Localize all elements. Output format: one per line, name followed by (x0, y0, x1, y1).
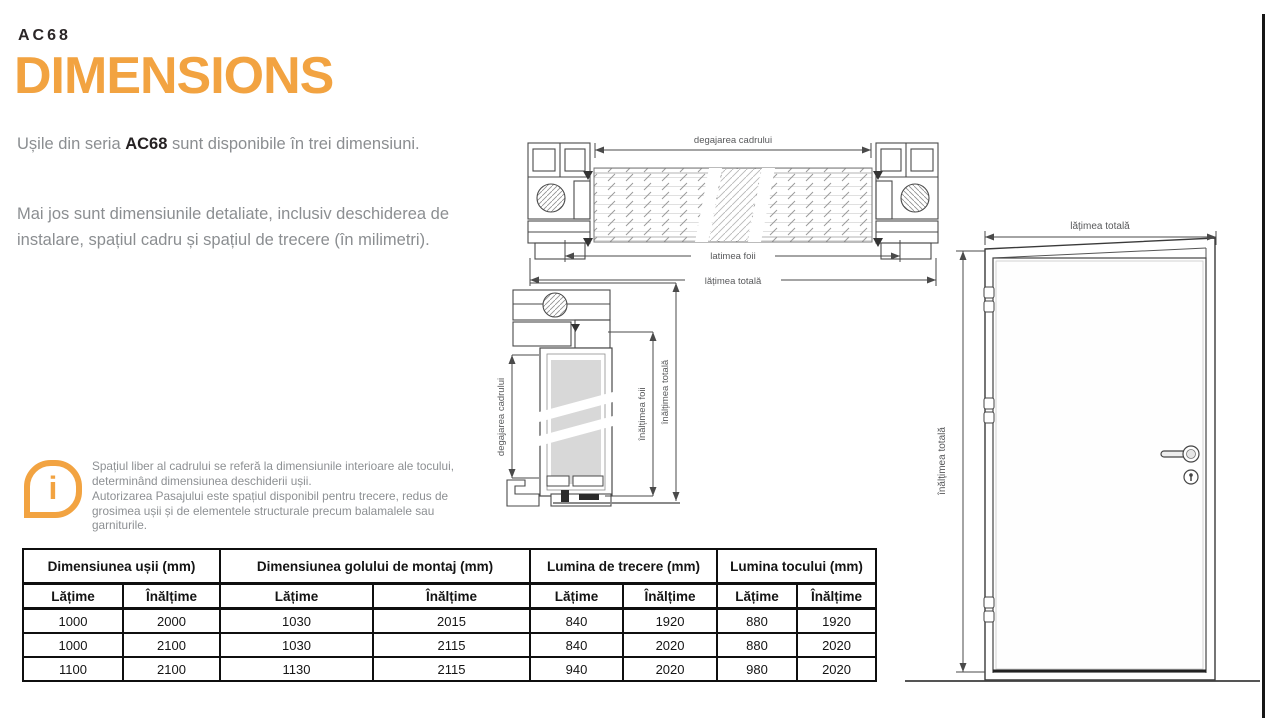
subheader-cell: Înălțime (373, 584, 530, 609)
dim-label-total-width: lățimea totală (705, 276, 762, 287)
dim-label-frame-clearance: degajarea cadrului (496, 378, 507, 456)
intro-lead: Ușile din seria (17, 135, 125, 153)
data-cell: 1000 (23, 633, 123, 657)
dim-label-total-height: înălțimea totală (660, 359, 671, 425)
intro-tail: sunt disponibile în trei dimensiuni. (167, 135, 419, 153)
table-subheader-row: Lățime Înălțime Lățime Înălțime Lățime Î… (23, 584, 876, 609)
data-cell: 2100 (123, 633, 220, 657)
details-paragraph: Mai jos sunt dimensiunile detaliate, inc… (17, 201, 467, 254)
data-cell: 2000 (123, 609, 220, 634)
data-cell: 840 (530, 609, 623, 634)
data-cell: 1000 (23, 609, 123, 634)
intro-paragraph: Ușile din seria AC68 sunt disponibile în… (17, 131, 467, 157)
data-cell: 940 (530, 657, 623, 681)
lock-cylinder-icon (1184, 470, 1198, 484)
dim-label-leaf-width: latimea foii (710, 251, 755, 262)
data-cell: 1030 (220, 633, 373, 657)
info-note: Spațiul liber al cadrului se referă la d… (92, 459, 477, 533)
dimensions-table: Dimensiunea ușii (mm) Dimensiunea golulu… (22, 548, 877, 682)
table-row: 1000 2000 1030 2015 840 1920 880 1920 (23, 609, 876, 634)
hinge-icon (984, 597, 994, 608)
hinge-icon (984, 301, 994, 312)
catalog-page: AC68 DIMENSIONS Ușile din seria AC68 sun… (0, 0, 1265, 718)
table-row: 1000 2100 1030 2115 840 2020 880 2020 (23, 633, 876, 657)
subheader-cell: Înălțime (623, 584, 717, 609)
data-cell: 880 (717, 609, 797, 634)
brand-name: AC68 (125, 135, 167, 153)
hinge-icon (984, 412, 994, 423)
frame-head-profile (513, 290, 610, 348)
subheader-cell: Lățime (717, 584, 797, 609)
frame-jamb-profile (528, 143, 593, 259)
dim-label-frame-clearance: degajarea cadrului (694, 135, 772, 146)
vertical-section-drawing: degajarea cadrului înălțimea foii înălți… (495, 280, 695, 512)
series-kicker: AC68 (18, 27, 71, 45)
subheader-cell: Lățime (220, 584, 373, 609)
data-cell: 2115 (373, 633, 530, 657)
group-header-frame-clearance: Lumina tocului (mm) (717, 549, 876, 584)
hinge-icon (984, 398, 994, 409)
group-header-passage-clearance: Lumina de trecere (mm) (530, 549, 717, 584)
data-cell: 2100 (123, 657, 220, 681)
info-icon: i (24, 460, 82, 518)
note-line-1: Spațiul liber al cadrului se referă la d… (92, 459, 477, 489)
door-leaf (993, 258, 1206, 672)
subheader-cell: Lățime (530, 584, 623, 609)
table-row: 1100 2100 1130 2115 940 2020 980 2020 (23, 657, 876, 681)
data-cell: 2015 (373, 609, 530, 634)
page-title: DIMENSIONS (14, 50, 333, 102)
door-leaf-section (594, 168, 872, 242)
data-cell: 1100 (23, 657, 123, 681)
door-front-view: lățimea totală înălțimea totală (898, 213, 1263, 693)
group-header-mounting-gap: Dimensiunea golului de montaj (mm) (220, 549, 530, 584)
data-cell: 840 (530, 633, 623, 657)
data-cell: 2020 (797, 633, 876, 657)
data-cell: 1030 (220, 609, 373, 634)
horizontal-section-drawing: degajarea cadrului latimea foii lățimea … (515, 128, 945, 293)
data-cell: 1920 (623, 609, 717, 634)
group-header-door-size: Dimensiunea ușii (mm) (23, 549, 220, 584)
data-cell: 2020 (623, 633, 717, 657)
dim-label-total-width: lățimea totală (1070, 221, 1130, 232)
data-cell: 1920 (797, 609, 876, 634)
door-leaf-vertical-section (539, 348, 613, 496)
data-cell: 2115 (373, 657, 530, 681)
subheader-cell: Înălțime (123, 584, 220, 609)
dim-label-leaf-height: înălțimea foii (637, 387, 648, 441)
table-group-header-row: Dimensiunea ușii (mm) Dimensiunea golulu… (23, 549, 876, 584)
data-cell: 1130 (220, 657, 373, 681)
info-icon-glyph: i (49, 472, 58, 504)
subheader-cell: Înălțime (797, 584, 876, 609)
data-cell: 2020 (797, 657, 876, 681)
hinge-icon (984, 611, 994, 622)
data-cell: 980 (717, 657, 797, 681)
subheader-cell: Lățime (23, 584, 123, 609)
hinge-icon (984, 287, 994, 298)
note-line-2: Autorizarea Pasajului este spațiul dispo… (92, 489, 477, 534)
data-cell: 2020 (623, 657, 717, 681)
data-cell: 880 (717, 633, 797, 657)
dim-label-total-height: înălțimea totală (937, 427, 948, 496)
